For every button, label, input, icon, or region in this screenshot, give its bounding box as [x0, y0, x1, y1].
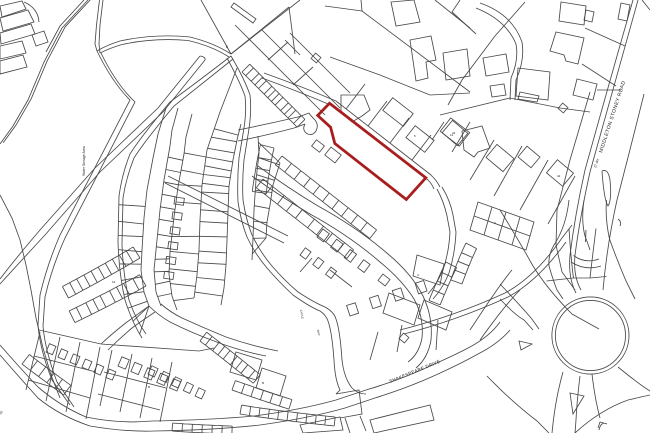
svg-text:16: 16: [112, 280, 116, 284]
svg-text:B: B: [148, 385, 150, 389]
svg-text:Water Storage Area: Water Storage Area: [82, 146, 86, 176]
svg-text:8: 8: [226, 45, 228, 49]
svg-text:B: B: [262, 381, 264, 385]
svg-text:14: 14: [450, 133, 454, 137]
svg-text:42: 42: [557, 174, 561, 178]
